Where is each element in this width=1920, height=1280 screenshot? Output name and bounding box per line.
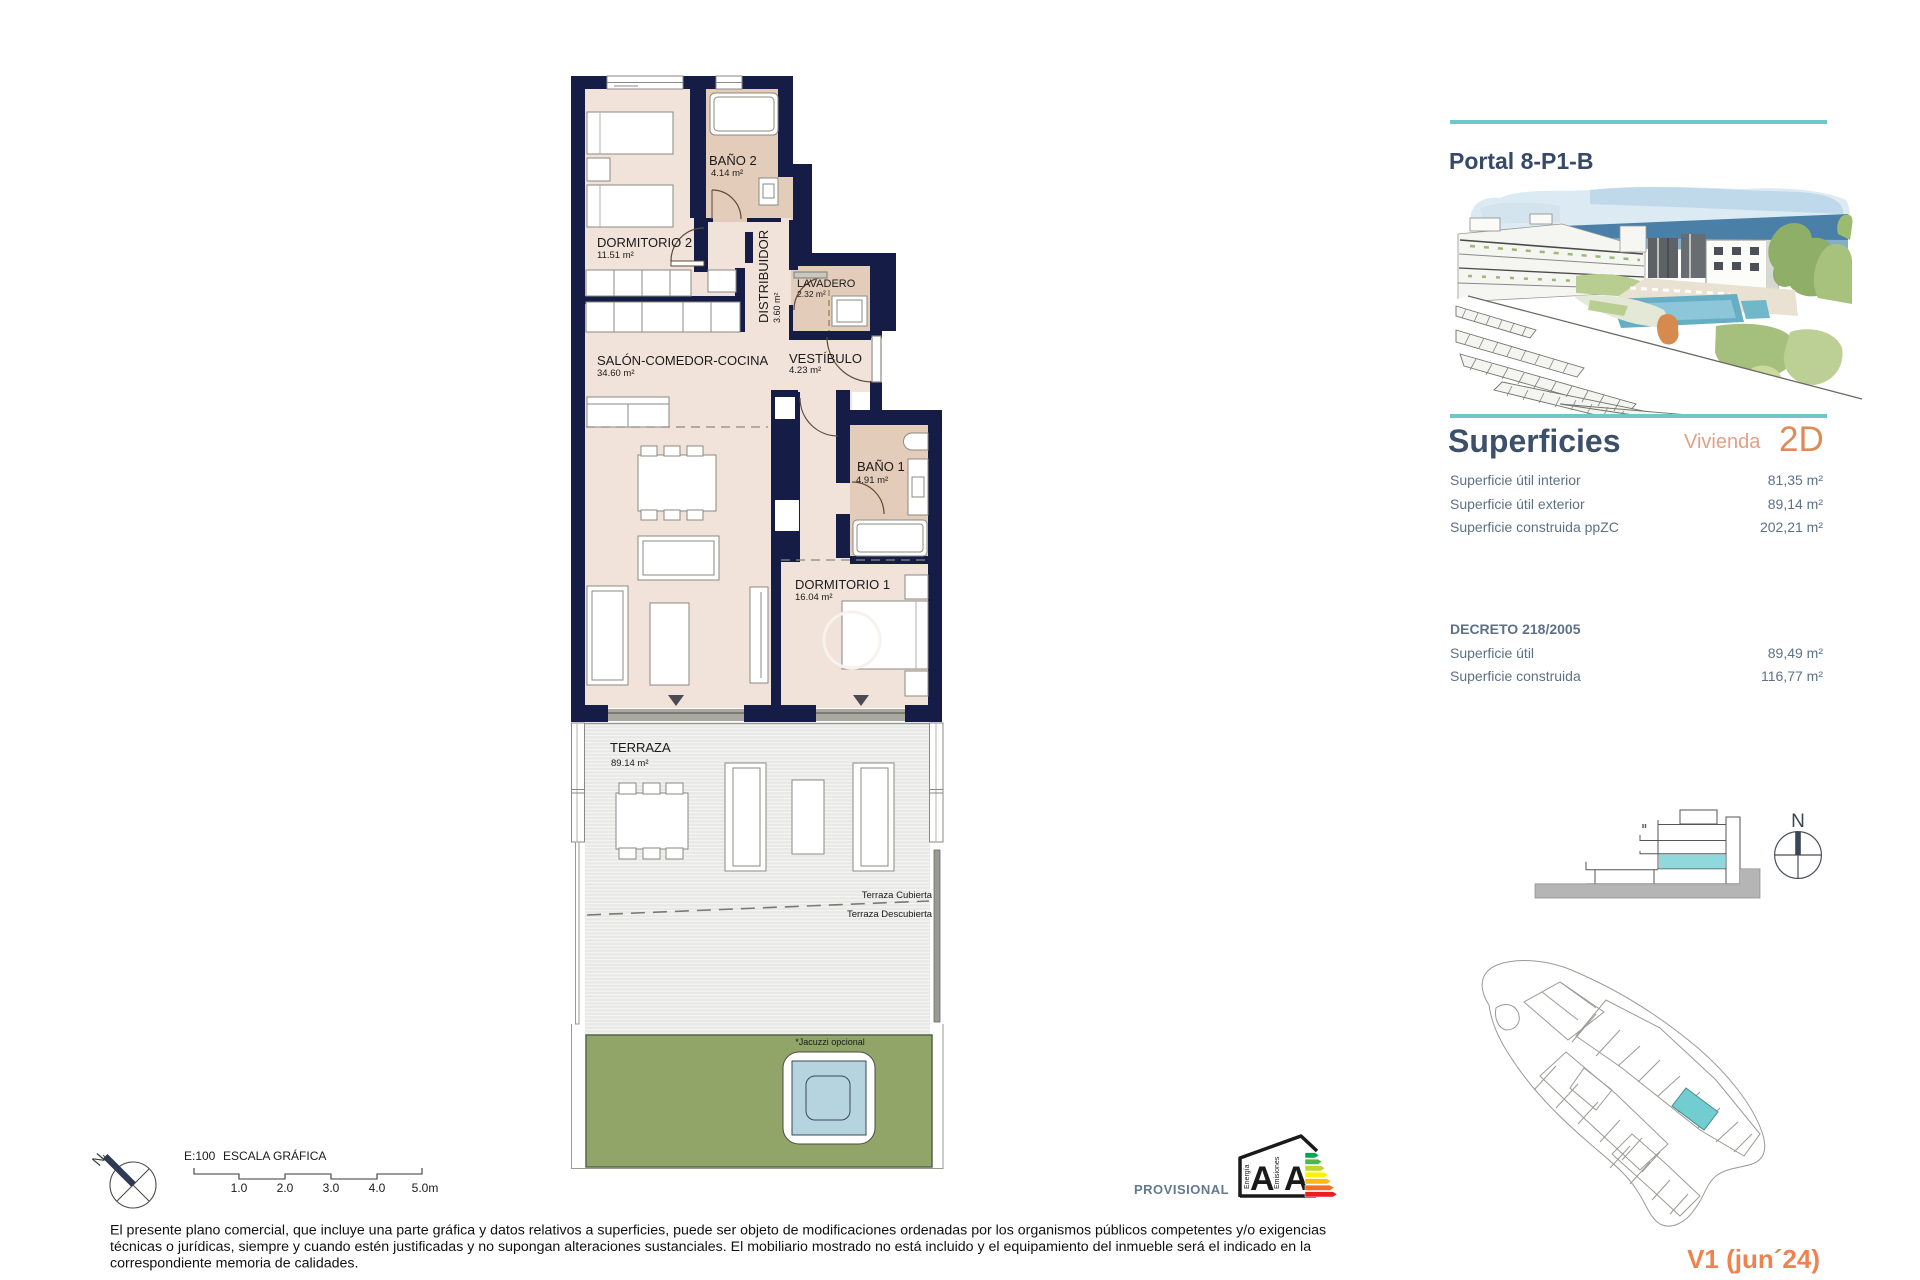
svg-text:Superficie útil exterior: Superficie útil exterior — [1450, 496, 1585, 512]
svg-text:Superficie útil: Superficie útil — [1450, 645, 1534, 661]
svg-text:DECRETO 218/2005: DECRETO 218/2005 — [1450, 621, 1581, 637]
svg-text:34.60 m²: 34.60 m² — [597, 368, 635, 379]
svg-text:A: A — [1250, 1160, 1275, 1198]
svg-text:E:100: E:100 — [184, 1149, 216, 1163]
svg-text:VESTÍBULO: VESTÍBULO — [789, 351, 862, 366]
svg-text:81,35 m²: 81,35 m² — [1768, 472, 1824, 488]
svg-text:3.60 m²: 3.60 m² — [772, 292, 782, 323]
svg-text:PROVISIONAL: PROVISIONAL — [1134, 1182, 1229, 1197]
svg-text:BAÑO 2: BAÑO 2 — [709, 153, 757, 168]
svg-text:4.23 m²: 4.23 m² — [789, 365, 821, 376]
svg-text:116,77 m²: 116,77 m² — [1761, 668, 1823, 684]
svg-text:Energía: Energía — [1244, 1164, 1251, 1189]
svg-text:*Jacuzzi opcional: *Jacuzzi opcional — [795, 1037, 865, 1047]
svg-text:El presente plano comercial, q: El presente plano comercial, que incluye… — [110, 1223, 1326, 1239]
svg-text:DORMITORIO 1: DORMITORIO 1 — [795, 577, 890, 592]
svg-text:técnicas o jurídicas, siempre: técnicas o jurídicas, siempre y cuando e… — [110, 1239, 1311, 1255]
svg-text:202,21 m²: 202,21 m² — [1760, 519, 1823, 535]
svg-text:V1 (jun´24): V1 (jun´24) — [1687, 1244, 1820, 1274]
svg-text:Terraza Cubierta: Terraza Cubierta — [862, 890, 933, 901]
svg-text:2.0: 2.0 — [277, 1181, 294, 1195]
svg-text:Superficie construida ppZC: Superficie construida ppZC — [1450, 519, 1619, 535]
svg-text:Superficies: Superficies — [1448, 423, 1621, 459]
svg-text:5.0m: 5.0m — [412, 1181, 439, 1195]
svg-text:DISTRIBUIDOR: DISTRIBUIDOR — [756, 230, 771, 323]
svg-text:89,49 m²: 89,49 m² — [1768, 645, 1824, 661]
svg-text:4.14 m²: 4.14 m² — [711, 168, 743, 179]
svg-text:TERRAZA: TERRAZA — [610, 740, 671, 755]
svg-text:4.91 m²: 4.91 m² — [856, 475, 888, 486]
svg-text:Vivienda: Vivienda — [1684, 431, 1761, 453]
svg-text:Portal 8-P1-B: Portal 8-P1-B — [1449, 148, 1593, 174]
svg-text:89.14 m²: 89.14 m² — [611, 758, 649, 769]
svg-text:2.32 m²: 2.32 m² — [797, 289, 826, 299]
svg-text:2D: 2D — [1779, 420, 1824, 459]
svg-text:3.0: 3.0 — [323, 1181, 340, 1195]
svg-text:Superficie construida: Superficie construida — [1450, 668, 1581, 684]
svg-text:16.04 m²: 16.04 m² — [795, 592, 833, 603]
svg-text:11.51 m²: 11.51 m² — [597, 250, 634, 261]
svg-text:Superficie útil interior: Superficie útil interior — [1450, 472, 1581, 488]
svg-text:N: N — [1791, 811, 1805, 832]
svg-text:ESCALA GRÁFICA: ESCALA GRÁFICA — [223, 1148, 326, 1163]
svg-text:4.0: 4.0 — [369, 1181, 386, 1195]
svg-text:BAÑO 1: BAÑO 1 — [857, 459, 905, 474]
svg-text:Emisiones: Emisiones — [1274, 1156, 1281, 1189]
svg-text:DORMITORIO 2: DORMITORIO 2 — [597, 235, 692, 250]
svg-text:89,14 m²: 89,14 m² — [1768, 496, 1824, 512]
svg-text:1.0: 1.0 — [231, 1181, 248, 1195]
svg-text:SALÓN-COMEDOR-COCINA: SALÓN-COMEDOR-COCINA — [597, 353, 769, 368]
svg-text:Terraza Descubierta: Terraza Descubierta — [847, 909, 933, 920]
svg-text:correspondiente memoria de cal: correspondiente memoria de calidades. — [110, 1256, 358, 1272]
